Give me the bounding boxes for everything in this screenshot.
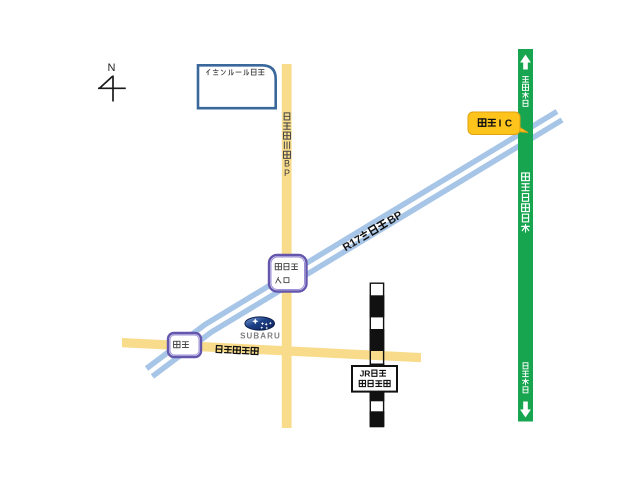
- svg-text:JR: JR: [360, 369, 371, 379]
- svg-text:N: N: [108, 62, 116, 74]
- svg-text:C: C: [505, 119, 512, 130]
- svg-text:B: B: [284, 159, 290, 169]
- svg-text:I: I: [499, 119, 502, 130]
- svg-text:P: P: [284, 168, 290, 178]
- svg-text:SUBARU: SUBARU: [240, 332, 281, 341]
